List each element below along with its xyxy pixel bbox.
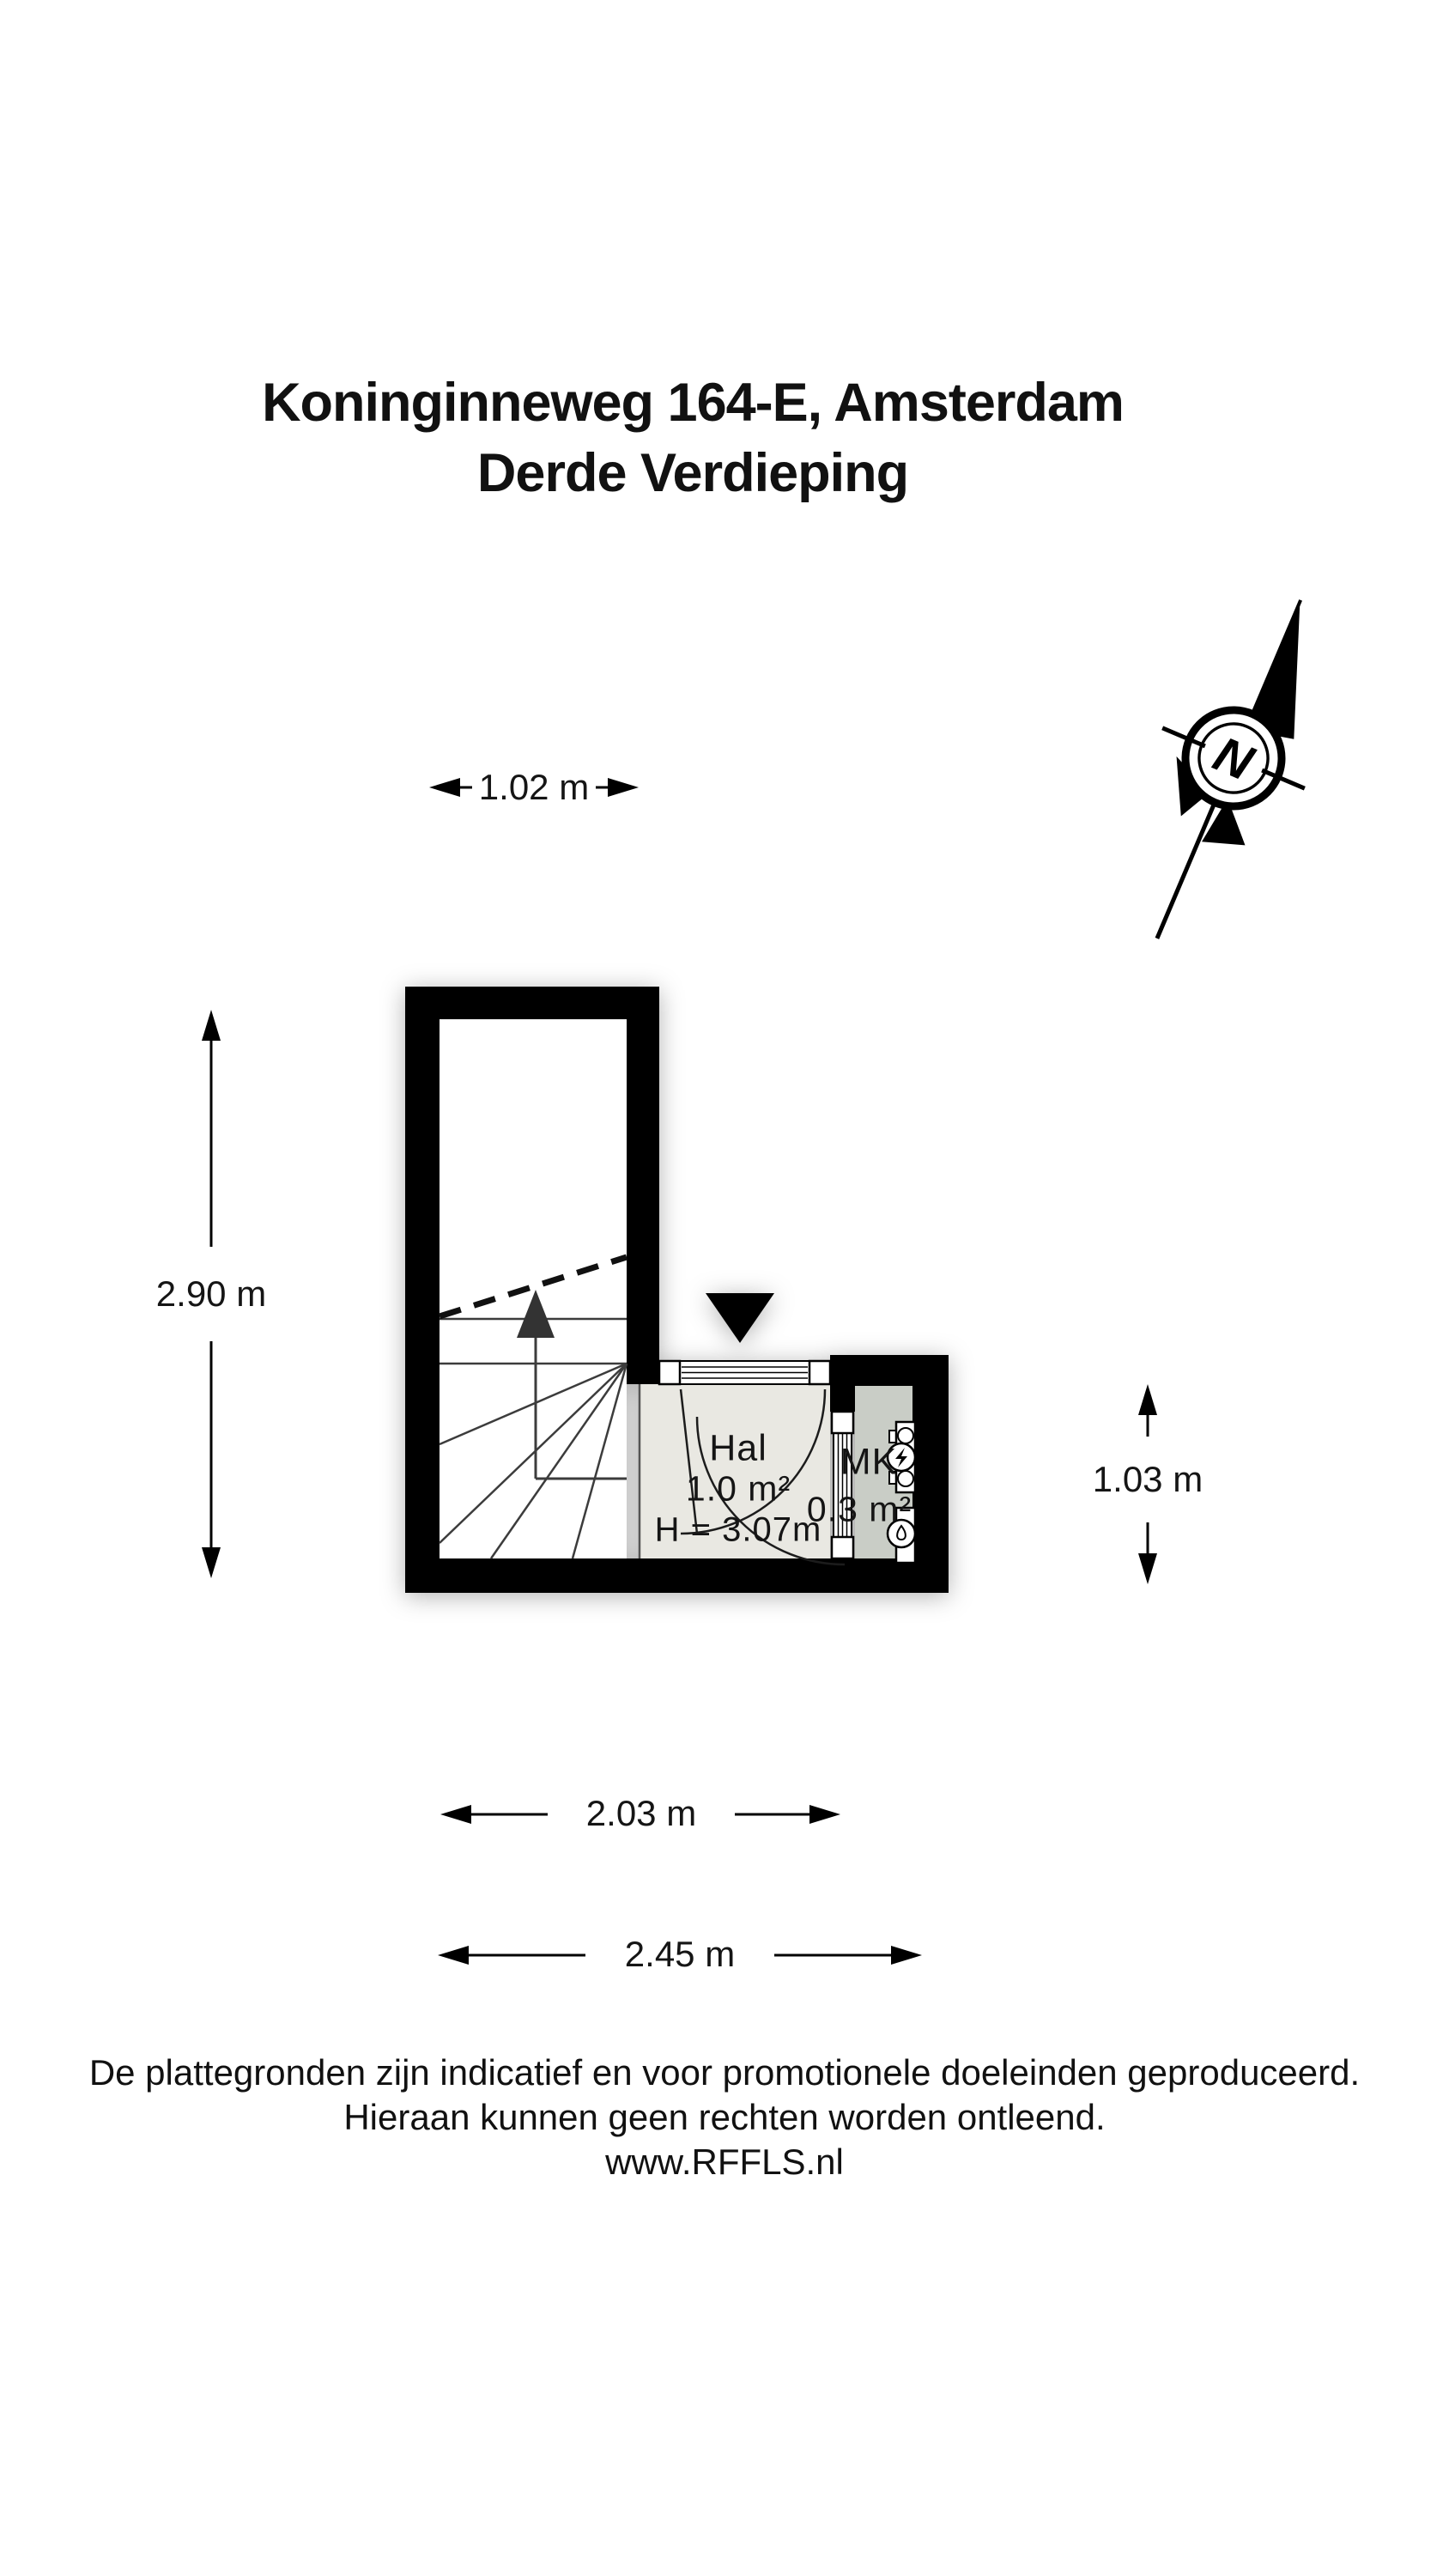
dim-top-width-label: 1.02 m <box>479 767 589 808</box>
hal-room-name: Hal <box>709 1428 767 1470</box>
disclaimer: De plattegronden zijn indicatief en voor… <box>89 2050 1360 2184</box>
hal-room-height: H = 3.07m <box>655 1511 822 1550</box>
hal-room-area: 1.0 m² <box>686 1469 791 1510</box>
entrance-door <box>659 1361 830 1384</box>
title-floor: Derde Verdieping <box>262 438 1124 508</box>
dim-left-height-label: 2.90 m <box>156 1273 266 1315</box>
page-title: Koninginneweg 164-E, Amsterdam Derde Ver… <box>262 368 1124 508</box>
dim-bottom-inner-label: 2.03 m <box>586 1793 696 1834</box>
mk-room-name: MK <box>840 1442 898 1484</box>
floorplan-page: N Koninginneweg 164-E, Amsterdam Derde V… <box>0 0 1449 2576</box>
mk-room-area: 0.3 m² <box>807 1490 912 1530</box>
entry-arrow-icon <box>706 1293 774 1343</box>
dim-right-height-label: 1.03 m <box>1093 1459 1203 1500</box>
north-arrow-icon: N <box>1086 570 1372 969</box>
title-address: Koninginneweg 164-E, Amsterdam <box>262 368 1124 438</box>
mk-door <box>832 1412 853 1558</box>
disclaimer-line-2: Hieraan kunnen geen rechten worden ontle… <box>89 2095 1360 2140</box>
dim-bottom-outer-label: 2.45 m <box>625 1934 735 1975</box>
disclaimer-line-1: De plattegronden zijn indicatief en voor… <box>89 2050 1360 2095</box>
disclaimer-website: www.RFFLS.nl <box>89 2140 1360 2184</box>
